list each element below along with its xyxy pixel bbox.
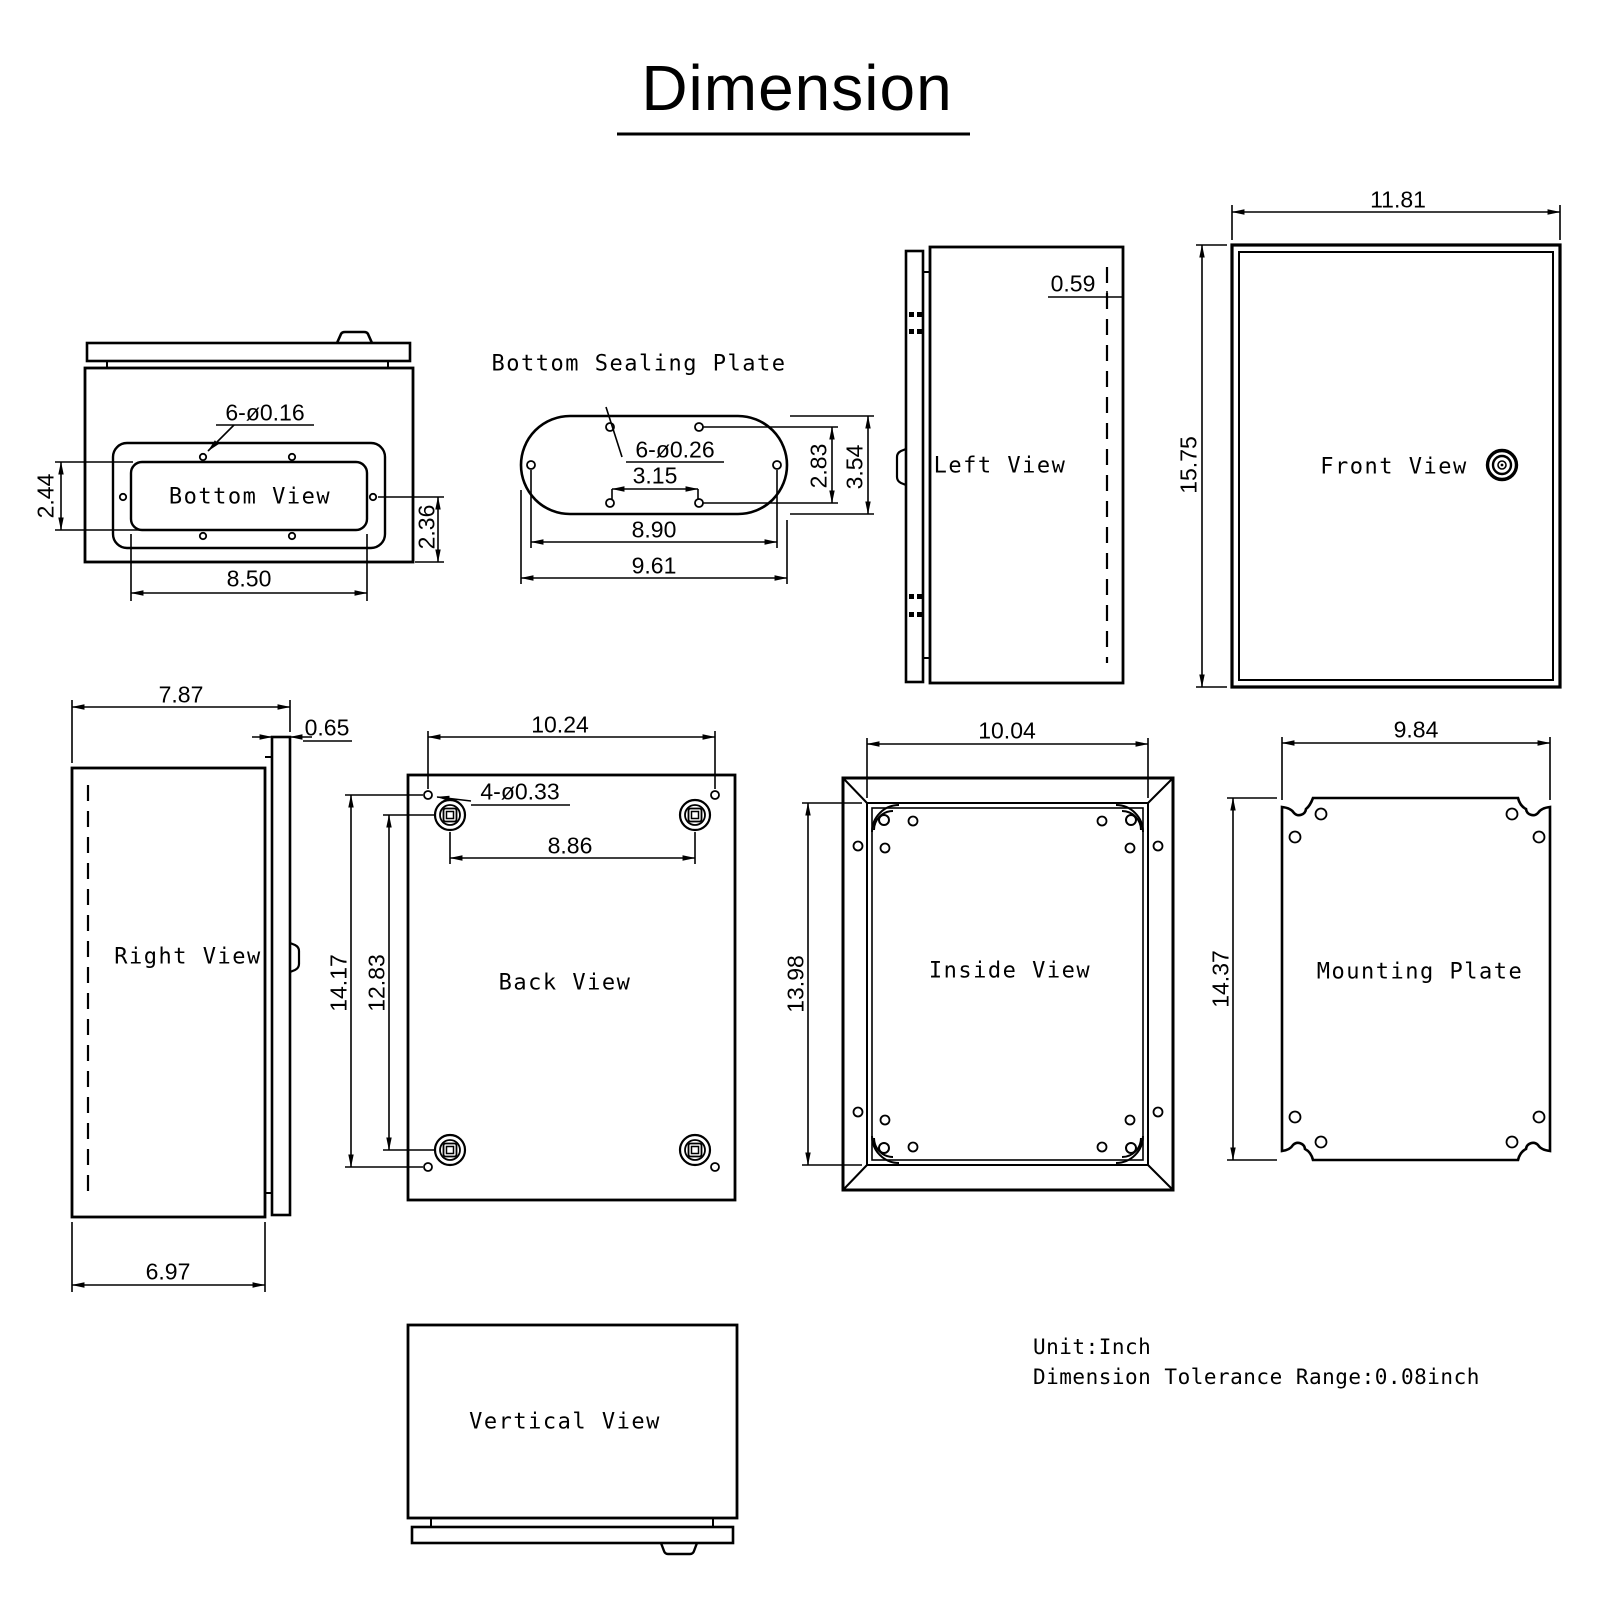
- dim-back-bracket-span-height: 12.83: [364, 954, 391, 1012]
- dim-right-body-depth: 6.97: [146, 1259, 191, 1286]
- left-view-handle: [897, 449, 906, 485]
- dim-mounting-height: 14.37: [1208, 950, 1235, 1008]
- dim-back-hole-span-width: 10.24: [531, 712, 589, 739]
- dim-front-width: 11.81: [1370, 187, 1426, 214]
- bottom-view-label: Bottom View: [169, 485, 331, 510]
- drawing-linework: [0, 0, 1600, 1600]
- dim-mounting-width: 9.84: [1394, 717, 1439, 744]
- dim-bottom-left-height: 2.44: [33, 474, 60, 519]
- front-view-drawing: [1196, 205, 1560, 687]
- note-tolerance: Dimension Tolerance Range:0.08inch: [1033, 1365, 1480, 1389]
- dim-inside-height: 13.98: [783, 955, 810, 1013]
- right-view-label: Right View: [114, 945, 261, 970]
- dim-plate-hole-width: 8.90: [632, 517, 677, 544]
- dim-back-bracket-span-width: 8.86: [548, 833, 593, 860]
- dim-plate-holes: 6-ø0.26: [635, 437, 714, 464]
- dim-bottom-right-height: 2.36: [414, 505, 441, 550]
- dim-front-height: 15.75: [1176, 436, 1203, 494]
- left-view-hinge-dots: [909, 312, 922, 617]
- vertical-view-label: Vertical View: [469, 1410, 661, 1435]
- dim-plate-width: 9.61: [632, 553, 677, 580]
- left-view-label: Left View: [934, 454, 1067, 479]
- door-lock-icon: [1488, 451, 1517, 480]
- bottom-sealing-plate-label: Bottom Sealing Plate: [492, 352, 787, 377]
- vertical-view-drawing: [408, 1325, 737, 1554]
- dim-plate-height: 3.54: [842, 445, 869, 490]
- right-view-handle: [290, 943, 299, 972]
- dimension-drawing-sheet: Dimension Bottom View 6-ø0.16 2.44 2.36 …: [0, 0, 1600, 1600]
- dim-back-hole-span-height: 14.17: [326, 954, 353, 1012]
- note-unit: Unit:Inch: [1033, 1335, 1151, 1359]
- inside-view-label: Inside View: [929, 959, 1091, 984]
- back-view-label: Back View: [499, 971, 632, 996]
- mounting-plate-label: Mounting Plate: [1317, 960, 1523, 985]
- dim-back-holes: 4-ø0.33: [480, 779, 559, 806]
- front-view-label: Front View: [1320, 455, 1467, 480]
- sheet-title: Dimension: [641, 51, 952, 125]
- bottom-sealing-plate-drawing: [521, 407, 874, 584]
- dim-left-door-inset: 0.59: [1051, 271, 1096, 298]
- dim-inside-width: 10.04: [978, 718, 1036, 745]
- inside-view-corner-clamps: [872, 805, 1143, 1163]
- dim-plate-inner-width: 3.15: [633, 463, 678, 490]
- dim-bottom-holes: 6-ø0.16: [225, 400, 304, 427]
- bottom-view-drawing: [55, 332, 444, 601]
- dim-plate-hole-height: 2.83: [806, 444, 833, 489]
- dim-bottom-width: 8.50: [227, 566, 272, 593]
- right-view-drawing: [72, 700, 352, 1292]
- dim-right-door-depth: 0.65: [305, 715, 350, 742]
- mounting-plate-drawing: [1227, 737, 1550, 1160]
- dim-right-total-depth: 7.87: [159, 682, 204, 709]
